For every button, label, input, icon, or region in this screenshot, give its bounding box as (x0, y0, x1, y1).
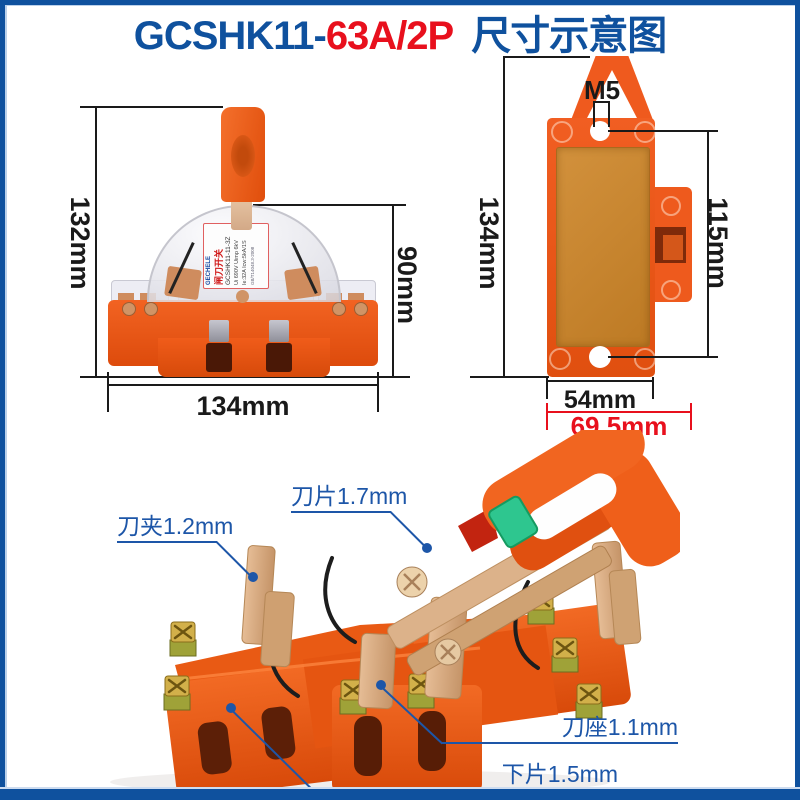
molding-mark (551, 121, 573, 143)
dim-line (504, 56, 590, 58)
dim-label-132mm: 132mm (66, 183, 94, 303)
dim-line (546, 380, 654, 382)
leader-dot (248, 572, 258, 582)
metal-clip (209, 320, 229, 342)
frame-inner-edge (5, 5, 7, 789)
spec-label-spec2: Ie:32A Icw:5kA/1S (242, 227, 249, 285)
dome-copper-contact (284, 266, 322, 300)
model-number-prefix: GCSHK11- (134, 14, 326, 58)
title-text: 尺寸示意图 (471, 14, 666, 58)
dome-hinge-pin (236, 290, 249, 303)
dim-line (608, 130, 718, 132)
dim-label-115mm: 115mm (704, 183, 732, 303)
switch-base-lower-block (158, 338, 330, 377)
spec-label-standard: GB/T14048.3-2008 (250, 227, 256, 285)
page-title: GCSHK11-63A/2P尺寸示意图 (0, 13, 800, 59)
back-fiber-panel (556, 147, 650, 347)
callout-clamp-label: 刀夹1.2mm (117, 513, 233, 540)
metal-clip (269, 320, 289, 342)
terminal-screw (122, 302, 136, 316)
frame-border-right (795, 0, 800, 800)
frame-border-bottom (0, 789, 800, 800)
dim-line (108, 384, 378, 386)
leader-line (442, 742, 678, 744)
spec-label-spec1: Ui 690V Uimp 6kV (234, 227, 241, 285)
molding-mark (634, 121, 656, 143)
dim-label-134mm-front: 134mm (108, 392, 378, 420)
model-number-suffix: 63A/2P (326, 14, 453, 58)
terminal-screw (332, 302, 346, 316)
spec-label: GECHELE 闸刀开关 GCSHK11-11-3Z Ui 690V Uimp … (203, 223, 269, 289)
dim-line (470, 376, 549, 378)
molding-mark (634, 348, 656, 370)
base-slot (266, 343, 292, 372)
handle-indent (231, 135, 255, 177)
dim-label-90mm: 90mm (393, 235, 421, 335)
dim-label-134mm-back: 134mm (475, 183, 503, 303)
switch-handle (458, 430, 680, 578)
spec-label-name: 闸刀开关 (214, 227, 224, 285)
leader-dot (422, 543, 432, 553)
spec-label-model: GCSHK11-11-3Z (225, 227, 233, 285)
dim-line (80, 106, 223, 108)
molding-mark (661, 280, 681, 300)
protrusion-socket-inner (663, 235, 683, 260)
dim-line (95, 106, 97, 378)
molding-mark (661, 196, 681, 216)
page: GCSHK11-63A/2P尺寸示意图 132mm 90mm 134mm GEC… (0, 0, 800, 800)
terminal-screw (144, 302, 158, 316)
callout-blade-label: 刀片1.7mm (291, 483, 407, 510)
leader-line (291, 511, 391, 513)
callout-seat-label: 刀座1.1mm (540, 714, 678, 741)
dim-label-54mm: 54mm (546, 386, 654, 414)
terminal-screw (354, 302, 368, 316)
spec-label-brand: GECHELE (206, 227, 213, 285)
molding-mark (549, 348, 571, 370)
dim-line (608, 356, 718, 358)
dim-line (253, 204, 406, 206)
leader-line (117, 541, 217, 543)
dim-label-m5: M5 (578, 76, 626, 104)
callout-bottom-plate-label: 下片1.5mm (470, 761, 618, 788)
dome-copper-contact (164, 266, 202, 300)
base-slot (206, 343, 232, 372)
frame-inner-edge (5, 5, 795, 6)
